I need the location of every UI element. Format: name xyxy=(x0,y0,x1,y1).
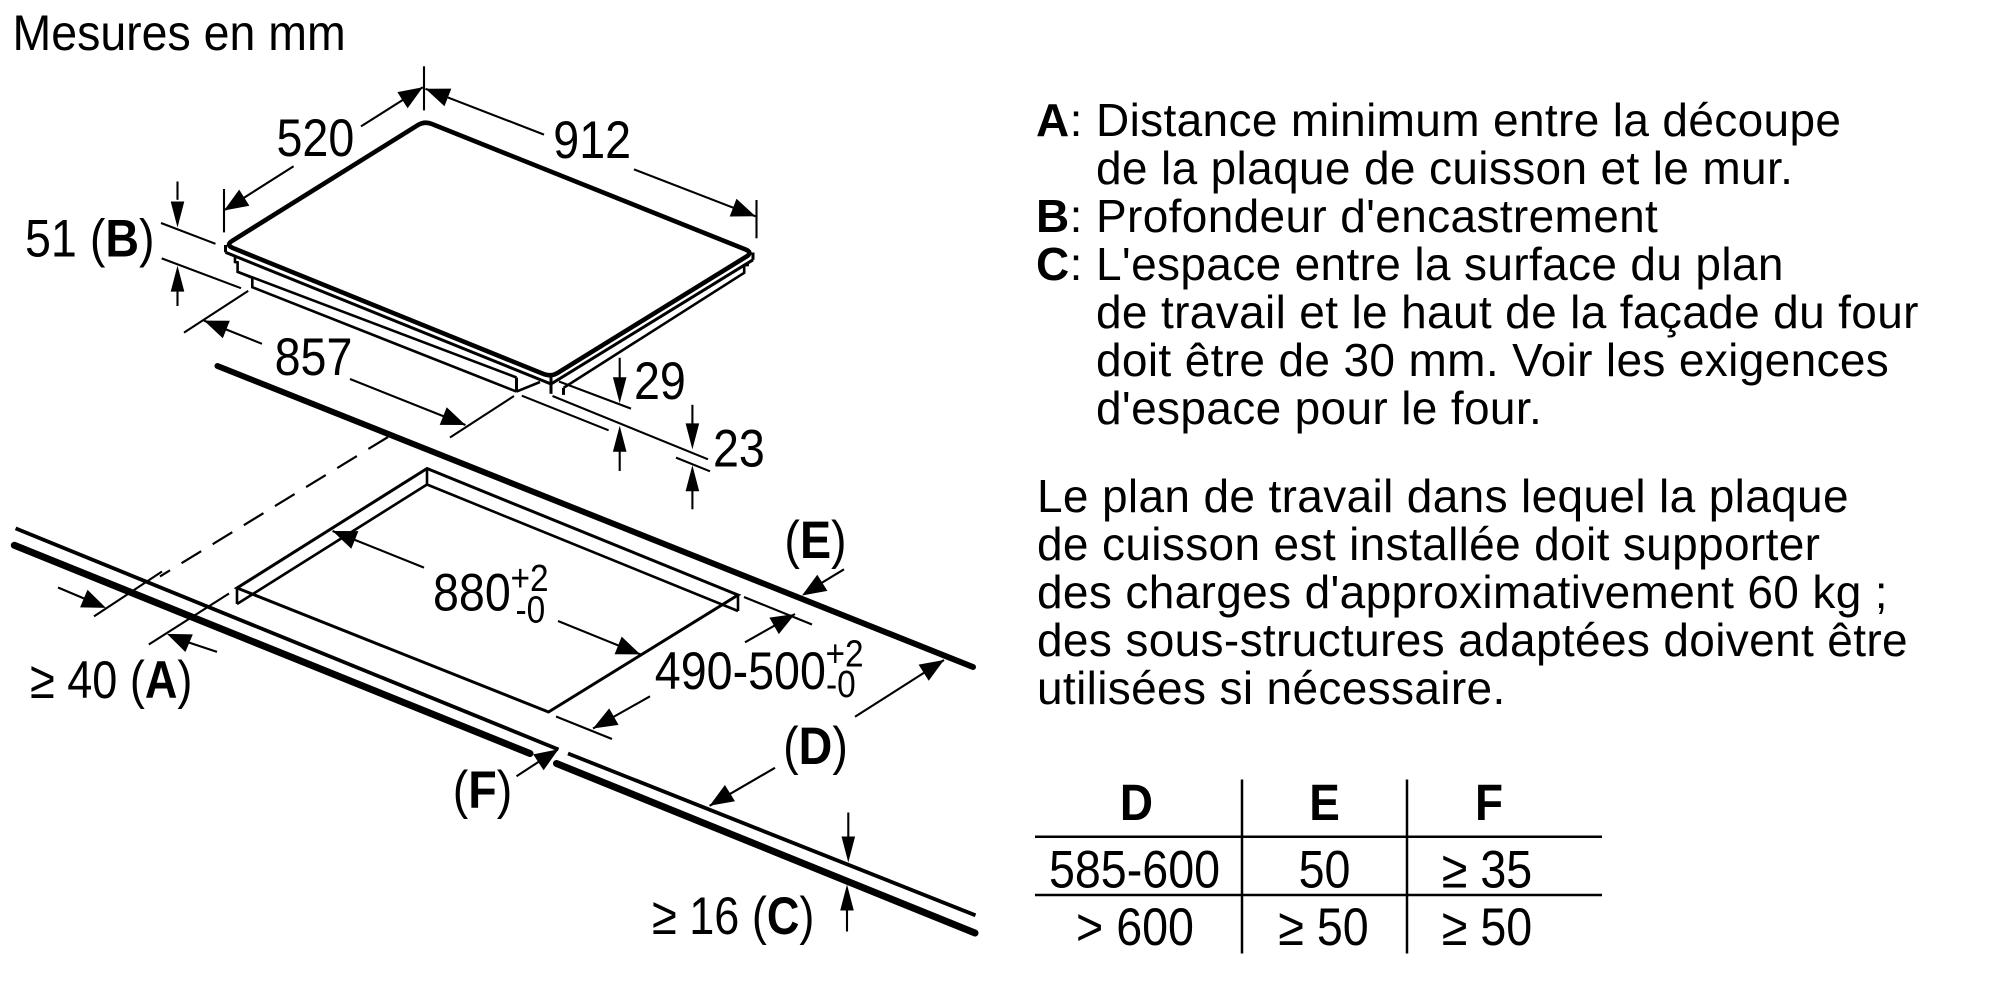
svg-text:≥ 50: ≥ 50 xyxy=(1442,897,1532,956)
svg-text:de cuisson est installée doit: de cuisson est installée doit supporter xyxy=(1037,518,1820,570)
svg-text:857: 857 xyxy=(275,327,353,386)
svg-text:520: 520 xyxy=(277,108,355,167)
svg-text:490-500: 490-500 xyxy=(655,641,826,700)
svg-text:Distance minimum entre la déco: Distance minimum entre la découpe xyxy=(1096,94,1841,146)
svg-text:≥ 16 (C): ≥ 16 (C) xyxy=(652,887,814,946)
svg-text:50: 50 xyxy=(1299,840,1351,899)
svg-text:880: 880 xyxy=(433,563,511,622)
svg-text:Mesures en mm: Mesures en mm xyxy=(13,5,346,61)
svg-text:(F): (F) xyxy=(453,760,513,819)
svg-text:des charges d'approximativemen: des charges d'approximativement 60 kg ; xyxy=(1037,566,1888,618)
svg-text:Profondeur d'encastrement: Profondeur d'encastrement xyxy=(1096,190,1658,242)
svg-text:(D): (D) xyxy=(783,716,848,775)
svg-text:F: F xyxy=(1475,775,1503,832)
svg-text:de la plaque de cuisson et le: de la plaque de cuisson et le mur. xyxy=(1096,142,1793,194)
svg-text:E: E xyxy=(1309,775,1340,832)
svg-text:de travail et le haut de la fa: de travail et le haut de la façade du fo… xyxy=(1096,286,1919,338)
svg-text:-0: -0 xyxy=(826,663,856,705)
svg-text:C:: C: xyxy=(1036,238,1083,290)
svg-text:D: D xyxy=(1120,775,1153,832)
svg-text:doit être de 30 mm. Voir les e: doit être de 30 mm. Voir les exigences xyxy=(1096,334,1889,386)
svg-text:Le plan de travail dans lequel: Le plan de travail dans lequel la plaque xyxy=(1037,470,1849,522)
svg-text:29: 29 xyxy=(634,351,686,410)
svg-text:≥ 40 (A): ≥ 40 (A) xyxy=(30,651,192,710)
svg-text:d'espace pour le four.: d'espace pour le four. xyxy=(1096,382,1542,434)
svg-text:51 (B): 51 (B) xyxy=(25,209,155,268)
svg-text:23: 23 xyxy=(713,419,765,478)
svg-text:A:: A: xyxy=(1036,94,1083,146)
svg-text:> 600: > 600 xyxy=(1076,897,1194,956)
svg-text:des sous-structures adaptées d: des sous-structures adaptées doivent êtr… xyxy=(1037,614,1908,666)
svg-text:≥ 50: ≥ 50 xyxy=(1278,897,1368,956)
svg-text:912: 912 xyxy=(553,110,631,169)
svg-text:B:: B: xyxy=(1036,190,1083,242)
svg-text:utilisées si nécessaire.: utilisées si nécessaire. xyxy=(1037,662,1506,714)
svg-text:(E): (E) xyxy=(784,510,846,569)
svg-text:L'espace entre la surface du p: L'espace entre la surface du plan xyxy=(1096,238,1784,290)
svg-text:-0: -0 xyxy=(516,589,546,631)
svg-text:585-600: 585-600 xyxy=(1049,840,1220,899)
svg-text:≥ 35: ≥ 35 xyxy=(1442,840,1532,899)
